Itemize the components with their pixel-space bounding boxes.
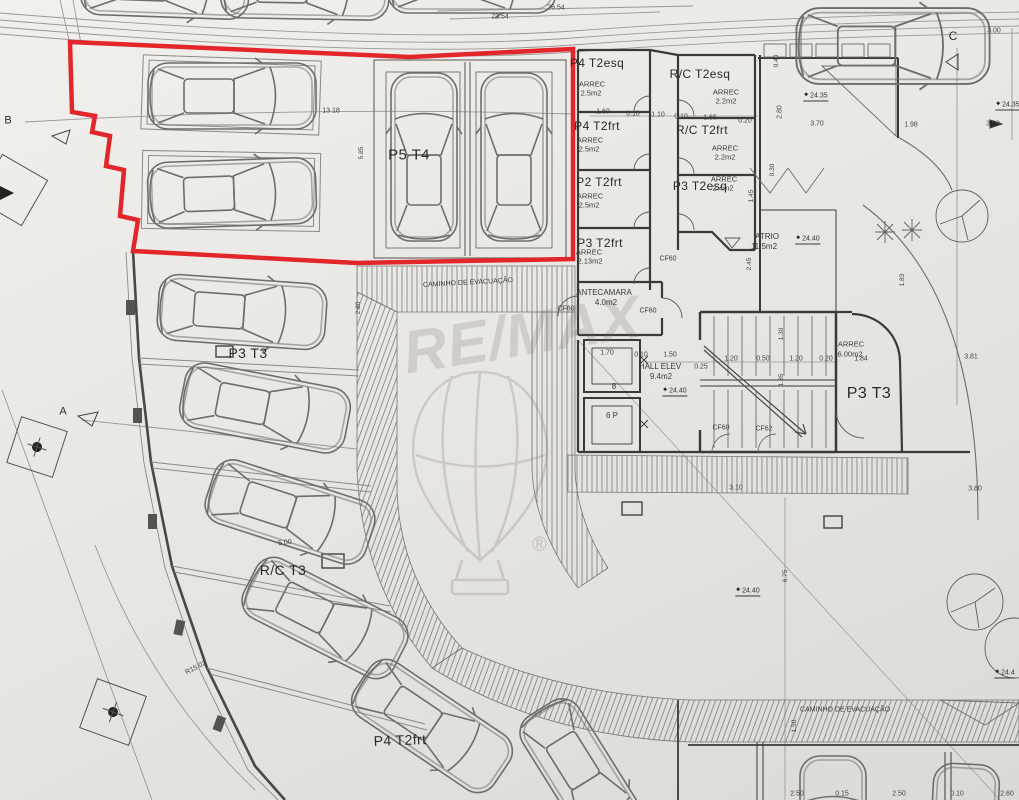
plant-icons — [875, 190, 1019, 678]
balloon-icon — [413, 372, 547, 594]
floor-plan-drawing — [0, 0, 1019, 800]
parking-stalls-upper-left — [141, 55, 321, 232]
garage-box-p5t4 — [374, 60, 566, 258]
stair-steps — [704, 316, 826, 452]
registered-trademark-icon: ® — [532, 534, 547, 557]
p3t3-door-arc — [836, 410, 864, 438]
survey-point-icons — [0, 154, 146, 745]
floor-plan-page: P4 T2esqARREC2.5m2R/C T2esqARREC2.2m21.6… — [0, 0, 1019, 800]
p3t3-room-walls — [836, 312, 970, 452]
atrium-walls — [758, 55, 898, 312]
stairwell-walls — [700, 312, 836, 452]
red-boundary-outline — [70, 42, 573, 263]
